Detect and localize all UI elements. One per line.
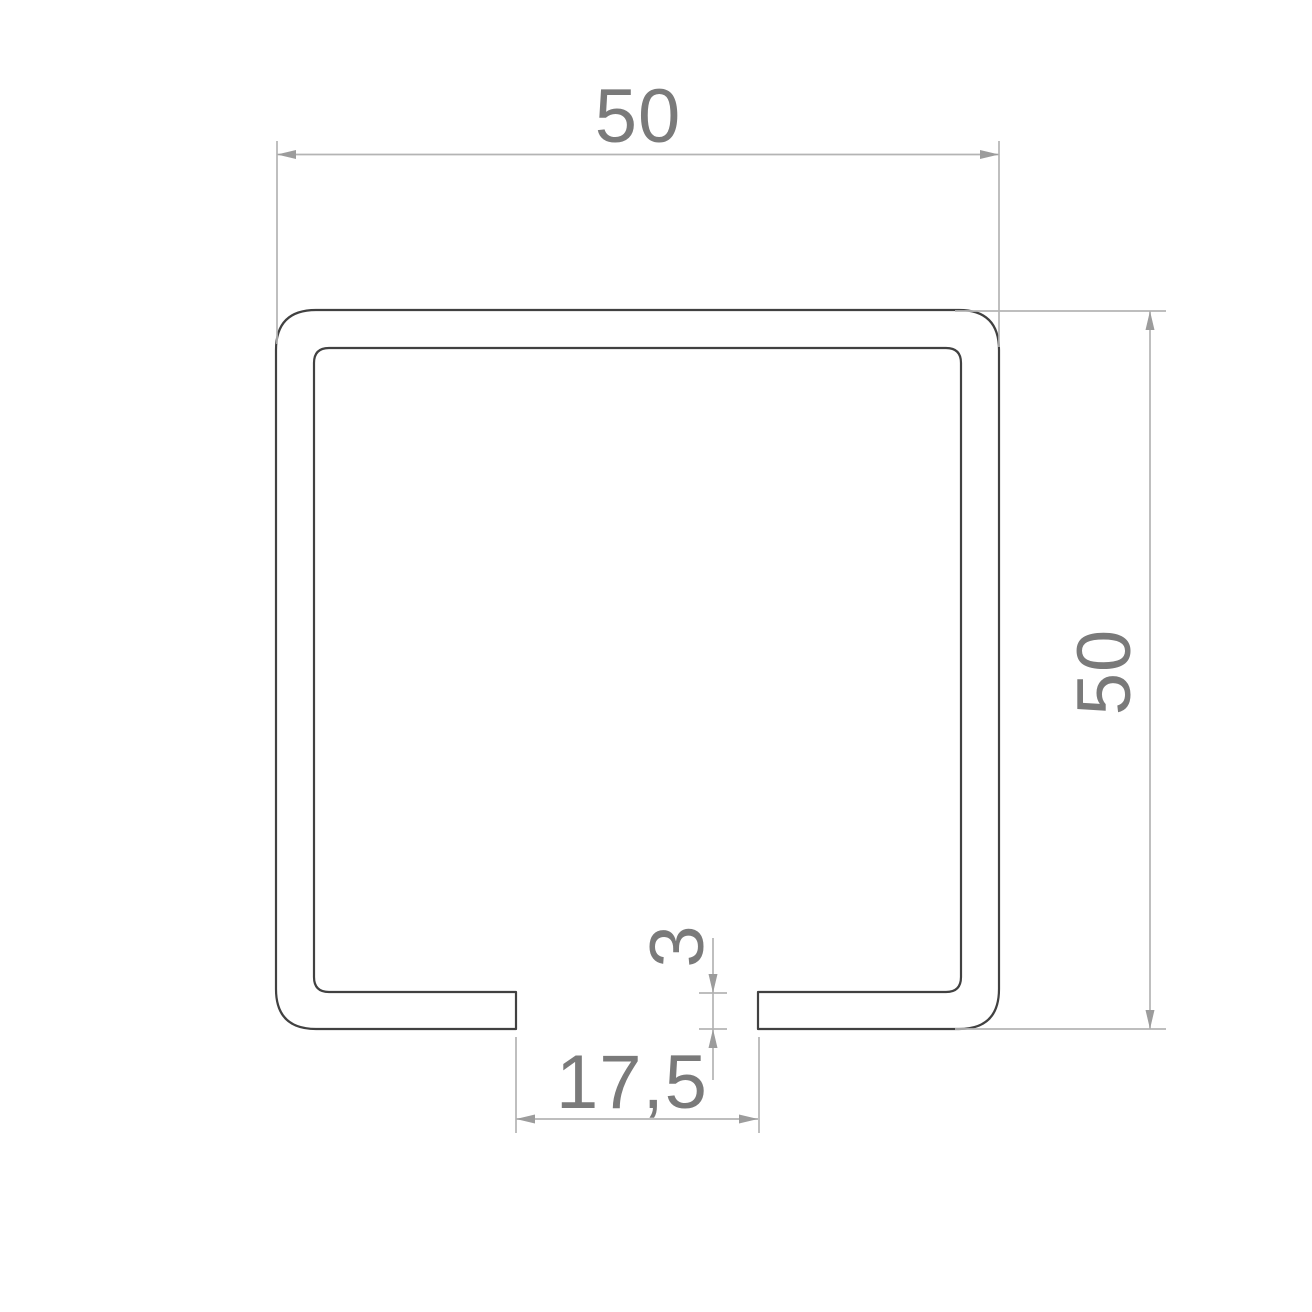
c-channel-profile-drawing: 50 50 17,5 3 [0, 0, 1312, 1312]
top-arrowhead-right-icon [980, 150, 999, 159]
right-arrowhead-top-icon [1146, 311, 1155, 330]
technical-drawing-canvas: 50 50 17,5 3 [0, 0, 1312, 1312]
right-height-value: 50 [1062, 629, 1147, 716]
gap-arrowhead-left-icon [516, 1115, 535, 1124]
gap-arrowhead-right-icon [739, 1115, 758, 1124]
top-arrowhead-left-icon [277, 150, 296, 159]
profile-outline [276, 310, 999, 1029]
right-arrowhead-bottom-icon [1146, 1010, 1155, 1029]
wall-thickness-value: 3 [635, 924, 720, 967]
bottom-gap-value: 17,5 [556, 1040, 708, 1125]
thickness-arrowhead-lower-icon [709, 1029, 718, 1048]
dimension-bottom-gap: 17,5 [516, 1037, 759, 1133]
dimension-top-width: 50 [277, 74, 999, 347]
thickness-arrowhead-upper-icon [709, 974, 718, 993]
top-width-value: 50 [595, 74, 682, 159]
